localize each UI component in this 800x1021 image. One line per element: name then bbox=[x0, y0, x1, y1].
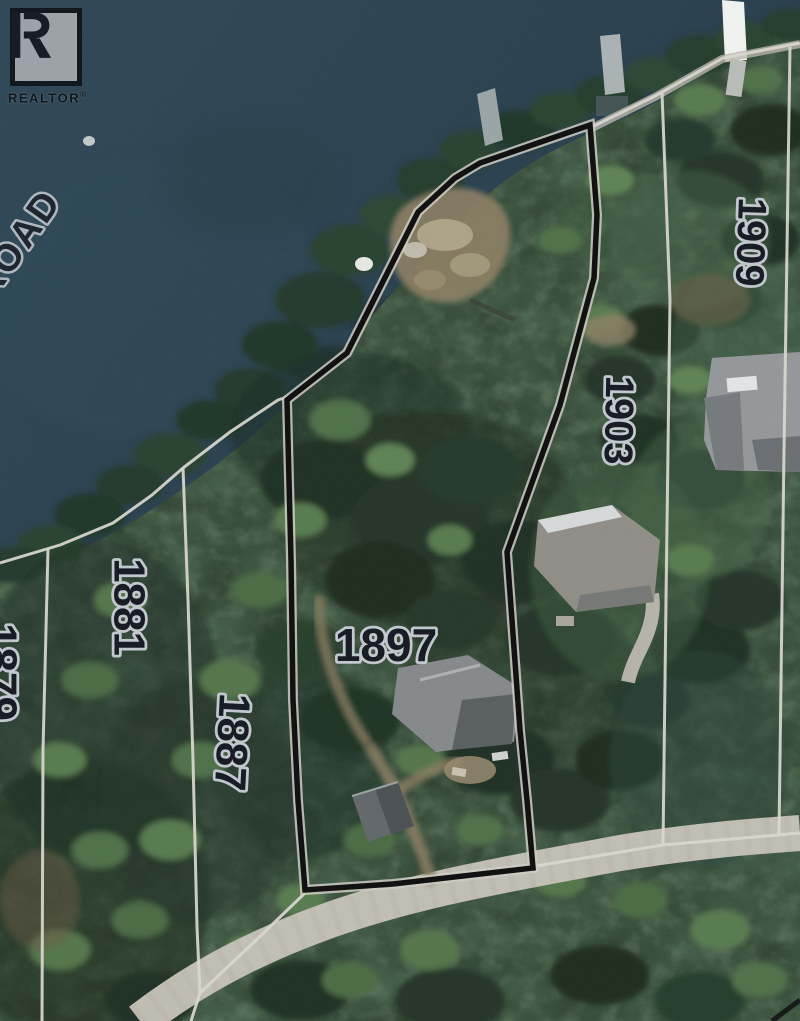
photo-grain bbox=[0, 0, 800, 1021]
registered-mark: ® bbox=[80, 90, 86, 99]
map-canvas: 1897 1903 1909 1881 1887 1879 ROAD bbox=[0, 0, 800, 1021]
realtor-r-icon bbox=[8, 8, 52, 62]
realtor-wordmark: REALTOR bbox=[8, 90, 80, 105]
aerial-map: 1897 1903 1909 1881 1887 1879 ROAD REALT… bbox=[0, 0, 800, 1021]
realtor-logo-label: REALTOR® bbox=[8, 88, 104, 105]
realtor-logo-box bbox=[10, 8, 82, 86]
realtor-logo: REALTOR® bbox=[8, 8, 104, 105]
